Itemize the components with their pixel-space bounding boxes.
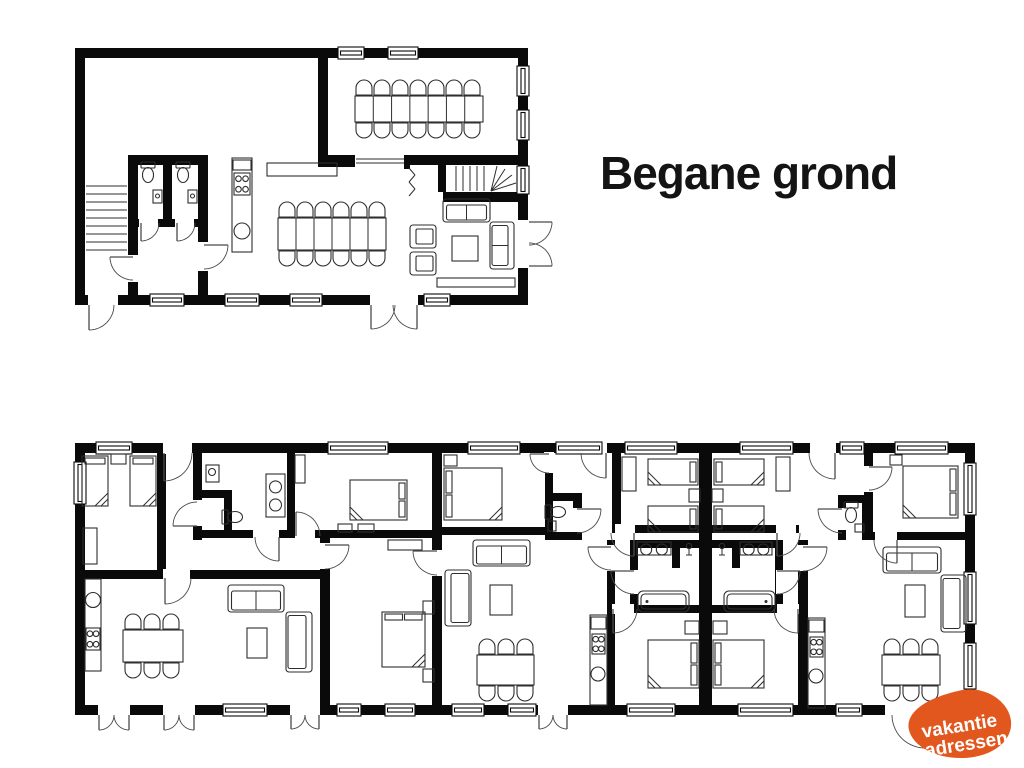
arm-shape: [410, 225, 436, 248]
table-shape: [477, 655, 534, 685]
chairs-shape: [884, 639, 938, 654]
bed-shape: [350, 480, 407, 520]
chairs-shape: [125, 614, 179, 629]
bed-shape: [713, 640, 764, 688]
rect-shape: [905, 585, 925, 617]
bed-shape: [648, 640, 699, 688]
floor-plan-title: Begane grond: [600, 146, 897, 200]
lines-shape: [356, 159, 404, 163]
tub-shape: [724, 591, 775, 612]
rect-shape: [388, 540, 422, 550]
rect-shape: [247, 628, 267, 658]
circle-shape: [156, 194, 160, 198]
appl-shape: [266, 474, 285, 517]
page: Begane grond vakantie adressen: [0, 0, 1024, 768]
circle-shape: [191, 194, 195, 198]
circle-shape: [86, 593, 101, 608]
stove-shape: [810, 637, 823, 657]
sofa-shape: [445, 570, 471, 626]
rect-shape: [188, 190, 197, 203]
bed-shape: [714, 459, 764, 485]
table-shape: [123, 630, 183, 662]
table-shape: [355, 96, 483, 122]
lines-shape: [409, 168, 415, 196]
table-shape: [278, 218, 386, 250]
vakantieadressen-logo: vakantie adressen: [896, 684, 1024, 768]
rect-shape: [233, 160, 251, 170]
rect-shape: [685, 621, 699, 634]
rect-shape: [622, 457, 636, 491]
sofa-shape: [286, 612, 312, 672]
table-shape: [882, 655, 940, 685]
chairs-shape: [279, 202, 385, 217]
rect-shape: [713, 621, 727, 634]
stove-shape: [86, 628, 100, 650]
chairs-shape: [356, 123, 480, 138]
rect-shape: [111, 454, 126, 464]
bed-shape: [382, 612, 425, 667]
rect-shape: [444, 455, 457, 466]
chairs-shape: [479, 639, 533, 654]
lines-shape: [86, 186, 127, 250]
chairs-shape: [356, 80, 480, 95]
wc-shape: [176, 162, 190, 183]
rect-shape: [206, 465, 219, 482]
rect-shape: [712, 489, 723, 502]
rect-shape: [452, 236, 478, 261]
chairs-shape: [479, 686, 533, 701]
sofa-shape: [473, 540, 530, 566]
stove-shape: [234, 173, 250, 195]
rect-shape: [809, 620, 824, 632]
bed-shape: [903, 466, 958, 518]
sofa-shape: [883, 547, 941, 573]
rect-shape: [591, 617, 606, 629]
circle-shape: [809, 669, 823, 683]
rect-shape: [153, 190, 162, 203]
sofa-shape: [941, 575, 966, 632]
arm-shape: [410, 252, 436, 275]
sofa-shape: [228, 585, 284, 612]
rect-shape: [490, 585, 512, 615]
lines-shape: [456, 166, 516, 191]
circle-shape: [234, 223, 250, 239]
bed-shape: [444, 468, 502, 520]
wc-shape: [141, 162, 155, 183]
rect-shape: [689, 489, 700, 502]
bed-shape: [648, 459, 698, 485]
plan-ground-floor-apartments: [74, 442, 976, 748]
bed-shape: [130, 456, 156, 506]
wc-shape: [844, 502, 858, 523]
sofa-shape: [490, 222, 514, 269]
rect-shape: [437, 278, 515, 287]
chairs-shape: [279, 251, 385, 266]
rect-shape: [295, 455, 305, 483]
tub-shape: [638, 591, 689, 612]
rect-shape: [83, 528, 97, 564]
floor-plans-canvas: [0, 0, 1024, 768]
rect-shape: [232, 158, 252, 252]
rect-shape: [776, 457, 790, 491]
stove-shape: [592, 634, 605, 654]
circle-shape: [591, 667, 605, 681]
sofa-shape: [443, 199, 490, 222]
plan-ground-floor-common: [75, 47, 552, 330]
circle-shape: [209, 469, 216, 476]
rect-shape: [890, 455, 902, 465]
chairs-shape: [125, 663, 179, 678]
